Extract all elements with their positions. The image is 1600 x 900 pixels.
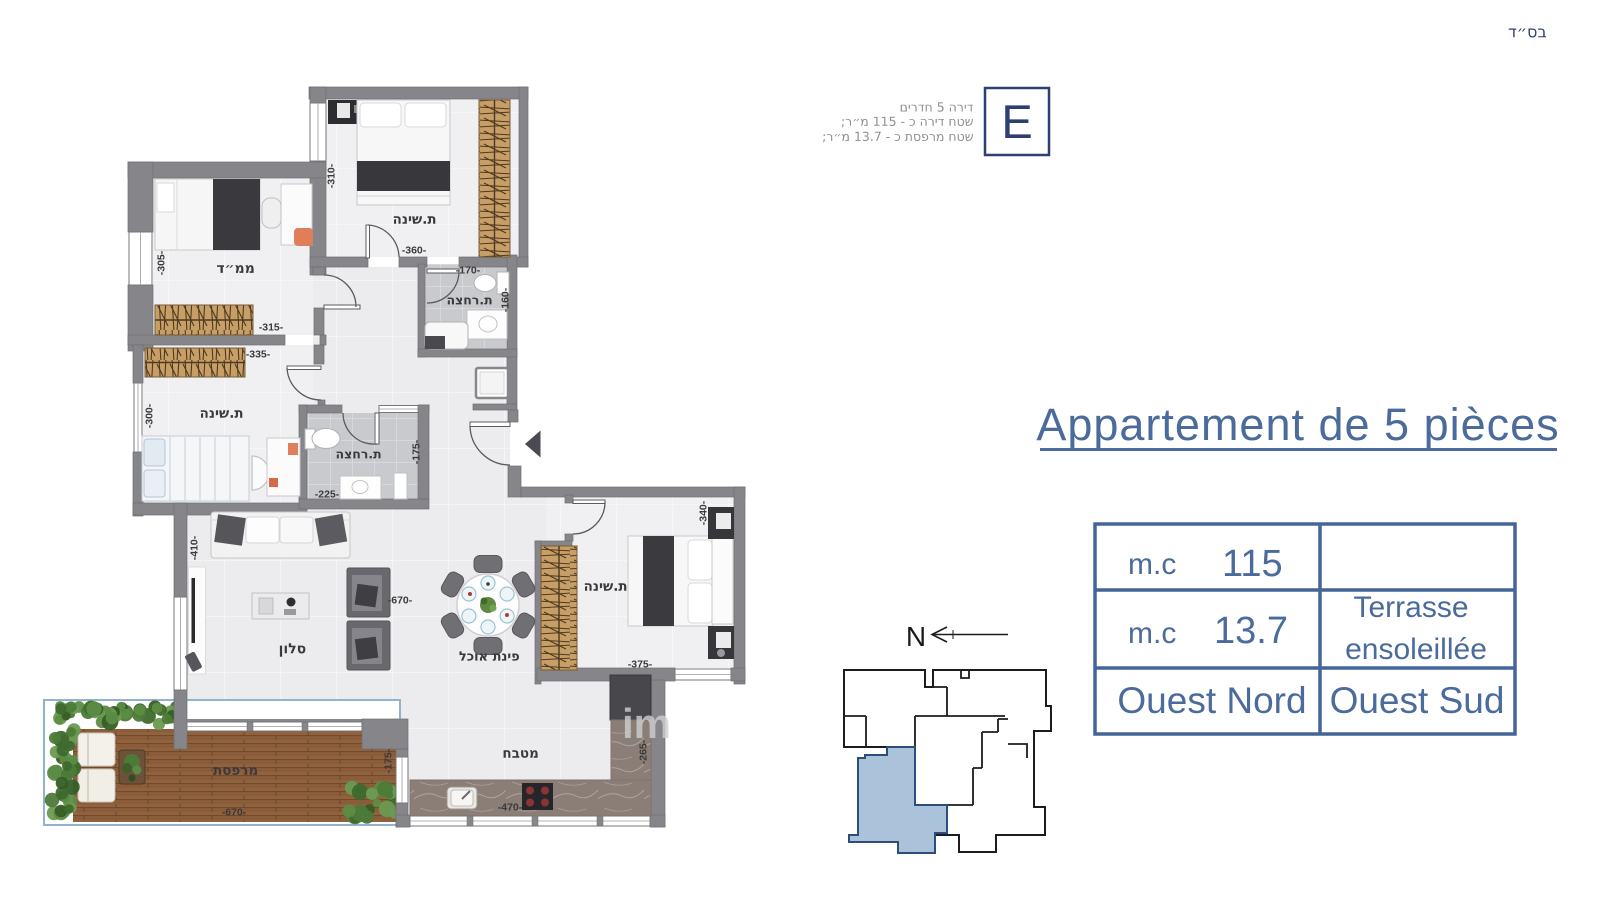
svg-text:-360-: -360- bbox=[402, 245, 427, 257]
svg-text:-265-: -265- bbox=[638, 739, 650, 764]
svg-text:-310-: -310- bbox=[326, 163, 338, 188]
svg-text:-175-: -175- bbox=[383, 748, 395, 773]
svg-text:-160-: -160- bbox=[500, 287, 512, 312]
svg-text:-410-: -410- bbox=[189, 535, 201, 560]
svg-text:Ouest Sud: Ouest Sud bbox=[1330, 680, 1505, 721]
svg-text:-225-: -225- bbox=[315, 489, 340, 501]
svg-text:-315-: -315- bbox=[259, 322, 284, 334]
svg-text:Ouest Nord: Ouest Nord bbox=[1117, 680, 1306, 721]
svg-text:m.c: m.c bbox=[1128, 617, 1176, 650]
svg-text:-305-: -305- bbox=[156, 250, 168, 275]
svg-text:115: 115 bbox=[1222, 543, 1283, 585]
svg-text:-670-: -670- bbox=[388, 595, 413, 607]
svg-text:-170-: -170- bbox=[456, 265, 481, 277]
svg-text:Appartement de 5 pièces: Appartement de 5 pièces bbox=[1036, 399, 1559, 450]
svg-text:-335-: -335- bbox=[246, 349, 271, 361]
svg-text:m.c: m.c bbox=[1128, 548, 1176, 581]
svg-text:E: E bbox=[1001, 95, 1032, 148]
svg-text:Terrasse: Terrasse bbox=[1353, 591, 1468, 624]
svg-text:-340-: -340- bbox=[698, 500, 710, 525]
svg-text:-300-: -300- bbox=[144, 403, 156, 428]
svg-text:-470-: -470- bbox=[498, 802, 523, 814]
svg-text:-375-: -375- bbox=[628, 659, 653, 671]
svg-text:13.7: 13.7 bbox=[1214, 610, 1288, 652]
svg-text:N: N bbox=[906, 621, 926, 652]
svg-text:-175-: -175- bbox=[411, 439, 423, 464]
svg-text:ensoleillée: ensoleillée bbox=[1345, 633, 1487, 666]
svg-text:-670-: -670- bbox=[222, 807, 247, 819]
